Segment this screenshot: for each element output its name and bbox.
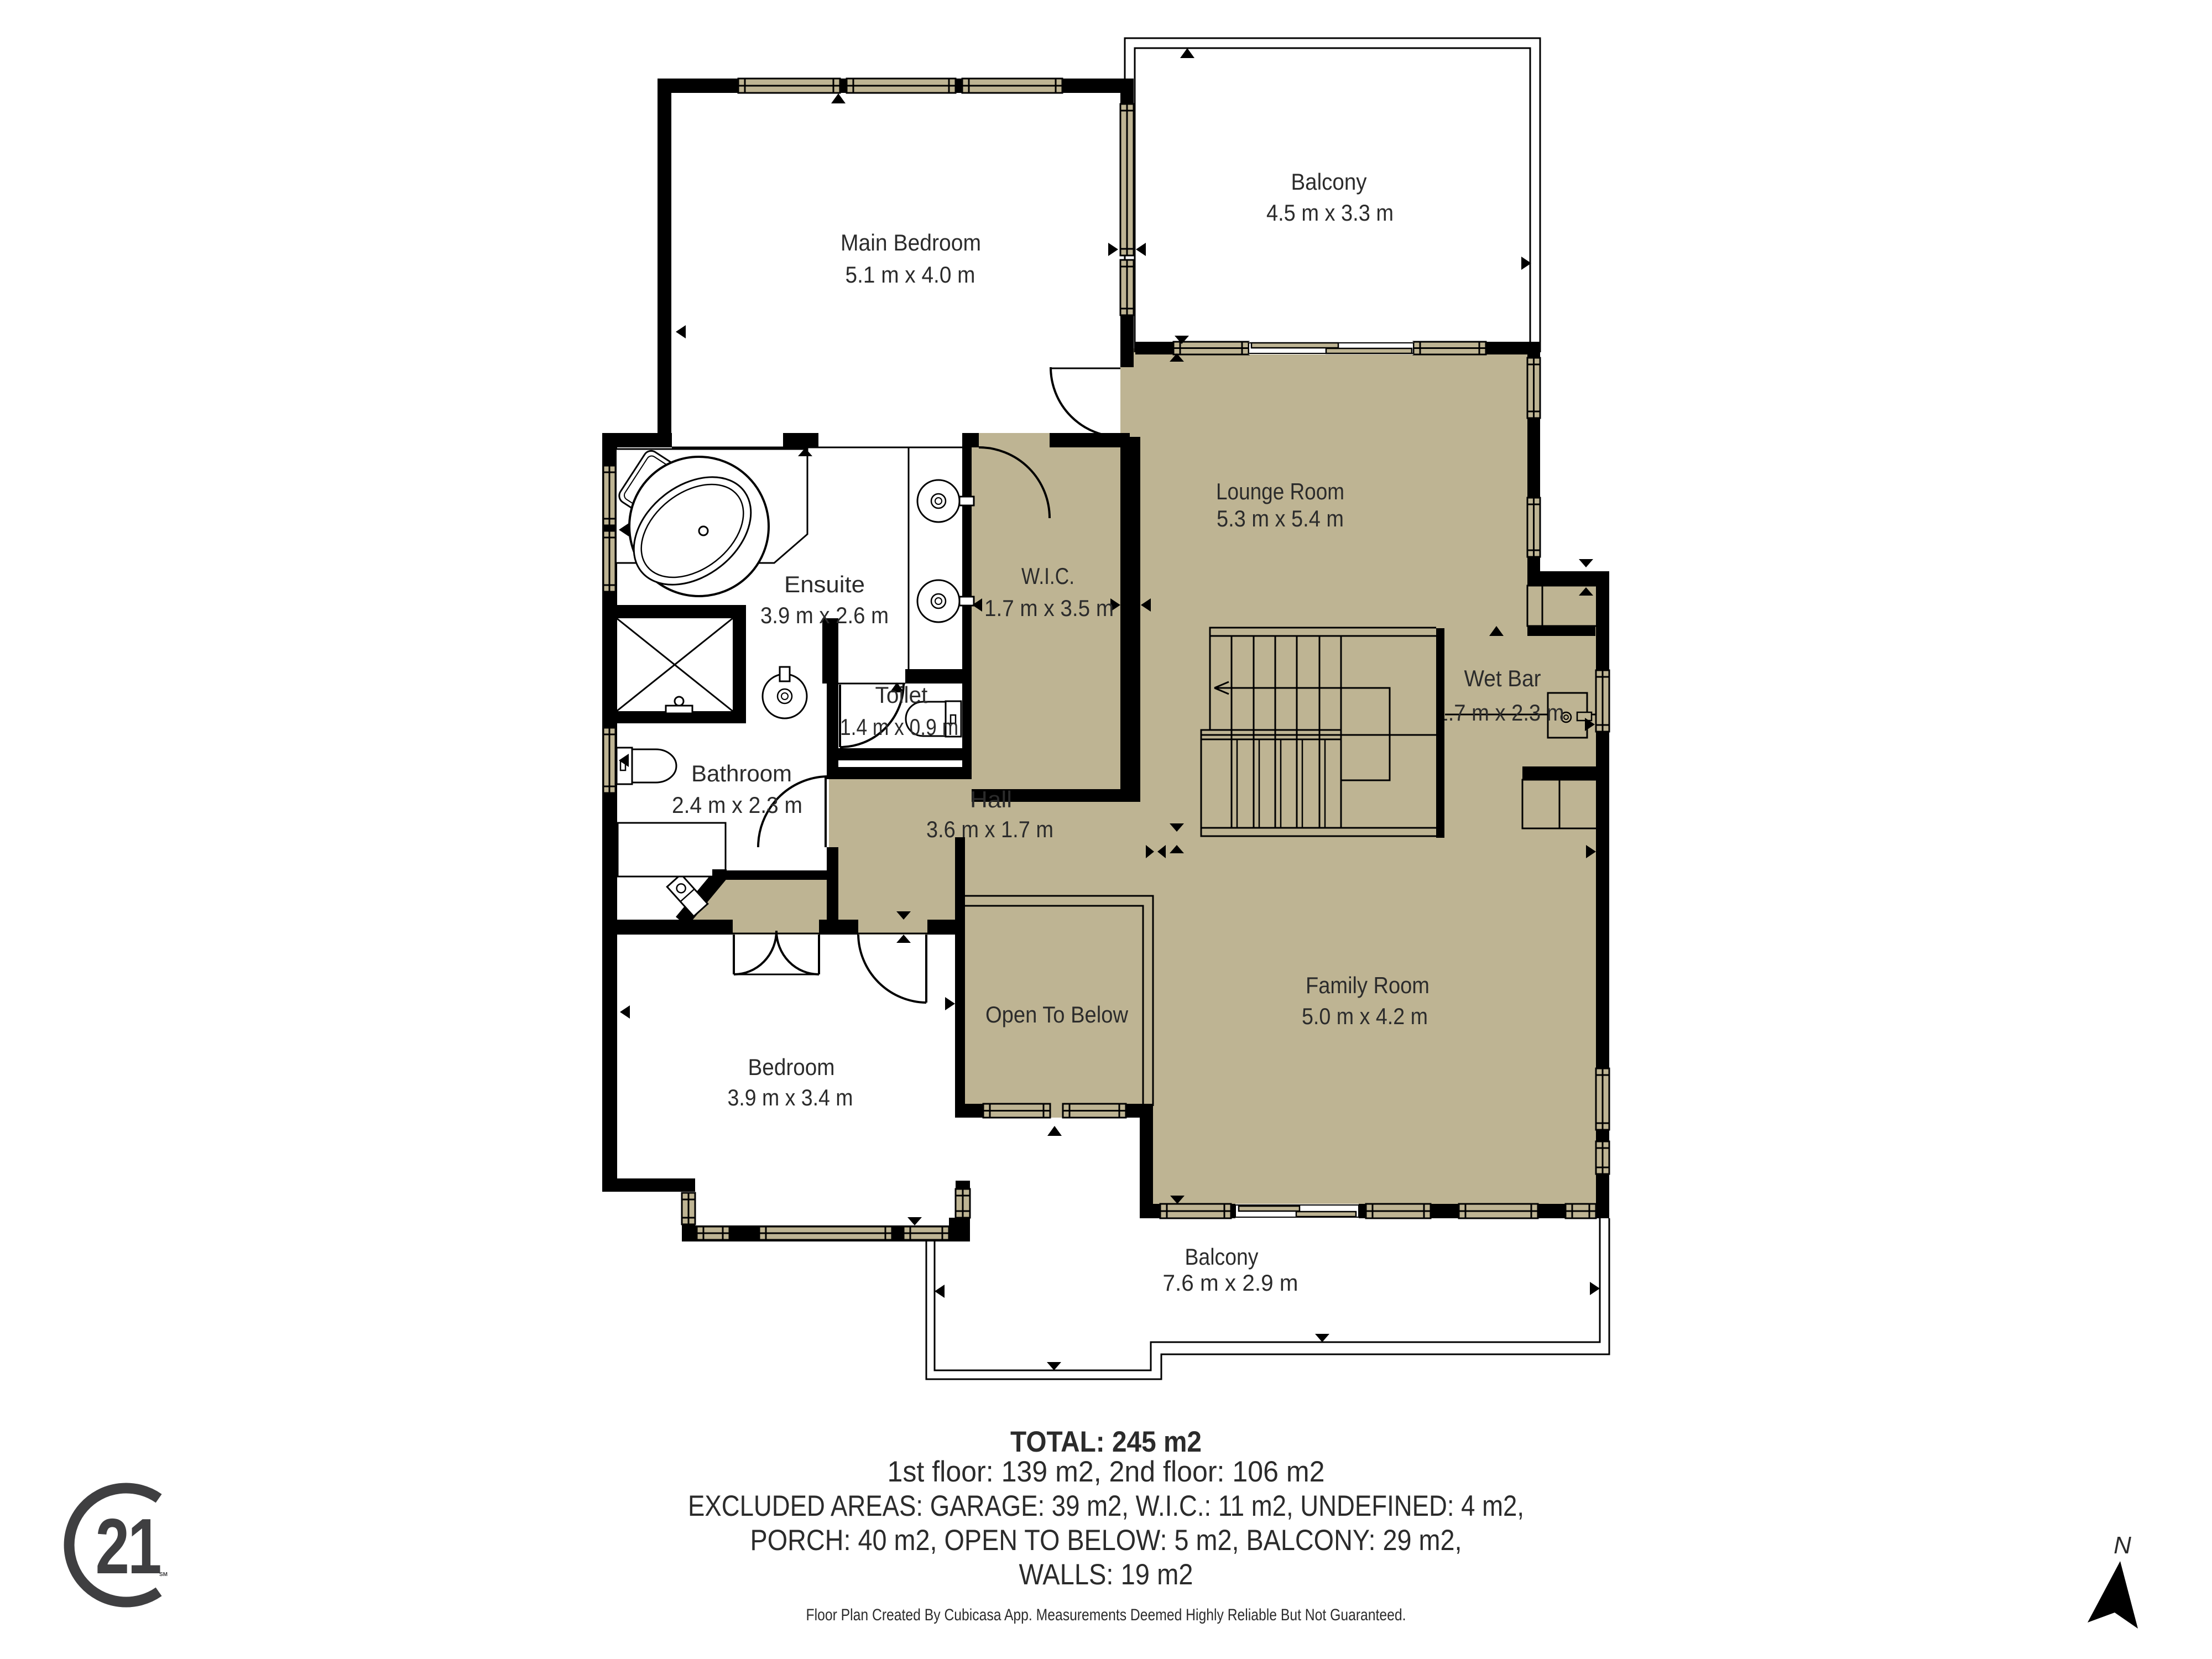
svg-text:5.0 m x 4.2 m: 5.0 m x 4.2 m	[1302, 1003, 1428, 1029]
svg-text:Open To Below: Open To Below	[985, 1001, 1129, 1027]
svg-text:N: N	[2114, 1532, 2131, 1559]
svg-text:Floor Plan Created By Cubicasa: Floor Plan Created By Cubicasa App. Meas…	[806, 1606, 1406, 1624]
svg-text:1.7 m x 3.5 m: 1.7 m x 3.5 m	[984, 595, 1114, 621]
svg-text:2.4 m x 2.3 m: 2.4 m x 2.3 m	[672, 792, 802, 818]
svg-text:PORCH: 40 m2, OPEN TO BELOW: 5: PORCH: 40 m2, OPEN TO BELOW: 5 m2, BALCO…	[750, 1524, 1462, 1557]
svg-text:4.5 m x 3.3 m: 4.5 m x 3.3 m	[1266, 200, 1394, 226]
svg-text:21: 21	[96, 1503, 161, 1590]
svg-text:SM: SM	[159, 1572, 168, 1578]
svg-text:5.3 m x 5.4 m: 5.3 m x 5.4 m	[1217, 505, 1344, 531]
svg-text:5.1 m x 4.0 m: 5.1 m x 4.0 m	[846, 262, 975, 288]
svg-text:3.6 m x 1.7 m: 3.6 m x 1.7 m	[926, 816, 1053, 842]
svg-text:WALLS: 19 m2: WALLS: 19 m2	[1019, 1558, 1193, 1591]
svg-text:3.9 m x 2.6 m: 3.9 m x 2.6 m	[760, 602, 889, 628]
svg-text:3.9 m x 3.4 m: 3.9 m x 3.4 m	[728, 1084, 853, 1110]
svg-text:Bathroom: Bathroom	[691, 760, 792, 786]
svg-text:Family Room: Family Room	[1306, 972, 1430, 998]
svg-text:Bedroom: Bedroom	[748, 1054, 835, 1080]
svg-text:Ensuite: Ensuite	[784, 571, 865, 597]
svg-text:Main Bedroom: Main Bedroom	[841, 229, 981, 255]
svg-text:Hall: Hall	[970, 786, 1012, 812]
svg-text:Wet Bar: Wet Bar	[1464, 665, 1541, 691]
svg-text:Balcony: Balcony	[1185, 1244, 1259, 1270]
svg-text:Balcony: Balcony	[1291, 169, 1367, 195]
svg-text:EXCLUDED AREAS: GARAGE: 39 m2,: EXCLUDED AREAS: GARAGE: 39 m2, W.I.C.: 1…	[688, 1490, 1524, 1522]
svg-text:1.4 m x 0.9 m: 1.4 m x 0.9 m	[840, 714, 958, 740]
svg-text:1.7 m x 2.3 m: 1.7 m x 2.3 m	[1437, 700, 1564, 726]
svg-text:W.I.C.: W.I.C.	[1021, 563, 1074, 589]
svg-text:7.6 m x 2.9 m: 7.6 m x 2.9 m	[1163, 1270, 1298, 1296]
svg-text:Lounge Room: Lounge Room	[1216, 478, 1344, 504]
svg-text:Toilet: Toilet	[875, 682, 928, 708]
svg-text:1st floor: 139 m2, 2nd floor:: 1st floor: 139 m2, 2nd floor: 106 m2	[888, 1455, 1325, 1488]
svg-text:TOTAL: 245 m2: TOTAL: 245 m2	[1010, 1426, 1202, 1458]
